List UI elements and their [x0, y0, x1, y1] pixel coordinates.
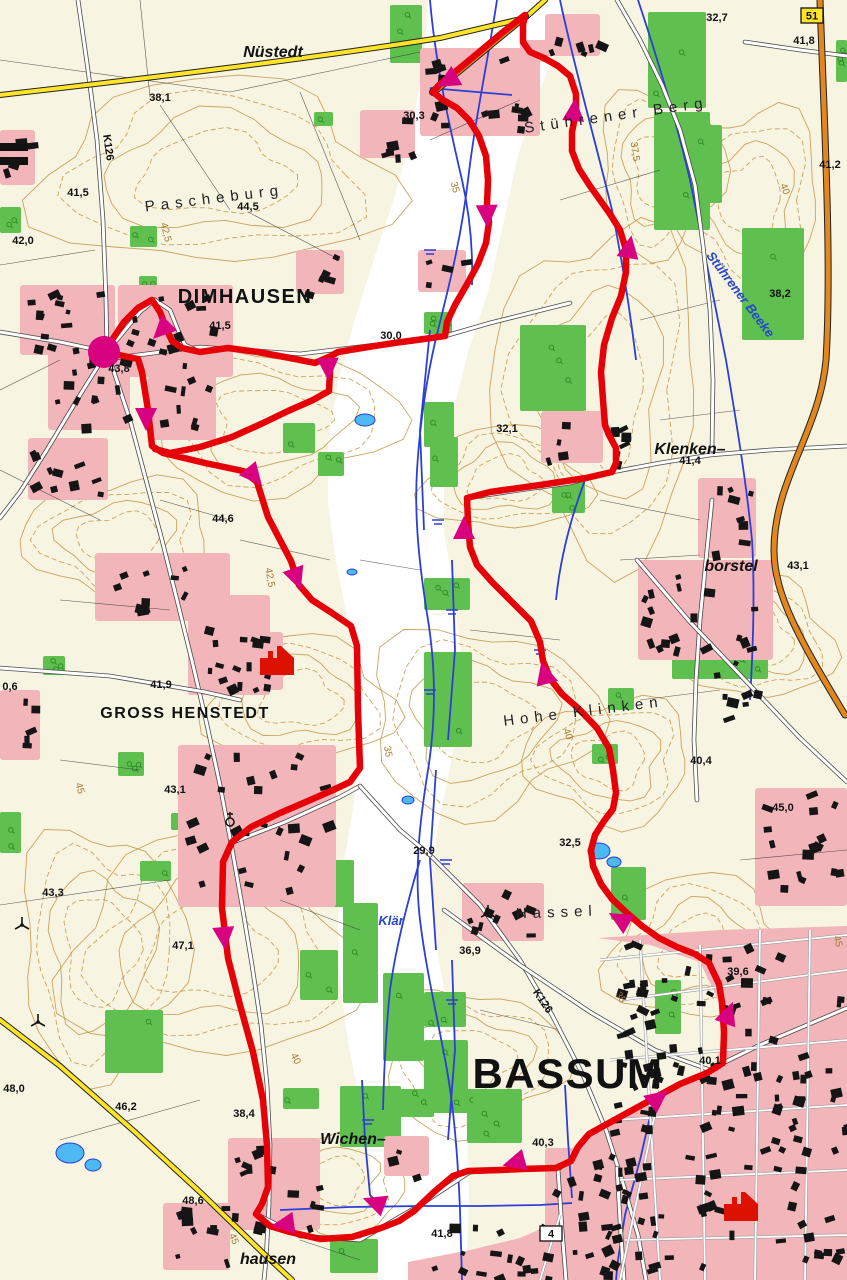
map-label: 32,1: [496, 423, 517, 435]
map-label: GROSS HENSTEDT: [100, 705, 269, 722]
forest-patch: [118, 752, 144, 776]
forest-patch: [330, 1239, 378, 1273]
map-label: DIMHAUSEN: [178, 286, 313, 308]
building: [677, 1065, 685, 1076]
building: [704, 588, 716, 598]
map-label: 39,6: [727, 966, 748, 978]
building: [176, 405, 181, 414]
map-label: 32,5: [559, 837, 580, 849]
map-label: K126: [100, 134, 116, 162]
building: [237, 682, 242, 691]
building: [665, 1255, 674, 1260]
map-label: 42,5: [158, 222, 173, 244]
building: [690, 613, 697, 622]
building: [23, 699, 28, 706]
forest-patch: [0, 207, 21, 233]
building: [751, 607, 758, 612]
map-label: K126: [530, 987, 555, 1016]
lake: [85, 1159, 101, 1171]
forest-patch: [314, 112, 333, 126]
building: [222, 1206, 231, 1211]
building: [578, 1221, 587, 1232]
building: [673, 1062, 680, 1069]
building: [496, 1228, 505, 1236]
field-boundary: [620, 555, 700, 560]
building: [72, 347, 79, 354]
building: [158, 296, 164, 302]
forest-patch: [343, 903, 378, 1003]
building: [837, 1002, 842, 1007]
map-label: 44,6: [212, 513, 233, 525]
building: [732, 1106, 745, 1117]
field-boundary: [0, 880, 170, 905]
building: [97, 491, 104, 497]
building: [741, 978, 753, 988]
field-boundary: [660, 410, 740, 420]
forest-patch: [520, 325, 586, 411]
wind-turbine-icon: [15, 925, 22, 929]
building: [97, 376, 104, 384]
building: [182, 1217, 194, 1226]
building: [213, 640, 219, 647]
building: [621, 432, 631, 442]
map-label: Klenken–: [654, 441, 725, 458]
building: [562, 422, 571, 430]
farm-building: [0, 143, 28, 151]
building: [614, 1102, 623, 1109]
wind-turbine-icon: [38, 1022, 45, 1026]
map-label: 41,9: [150, 679, 171, 691]
map-label: 40: [288, 1051, 303, 1066]
map-canvas: 38,141,542,044,530,330,041,543,844,632,7…: [0, 0, 847, 1280]
map-label: borstel: [704, 558, 758, 575]
building: [558, 451, 569, 460]
building: [24, 736, 29, 745]
building: [55, 399, 61, 404]
building: [41, 333, 50, 339]
map-label: 46,2: [115, 1101, 136, 1113]
topographic-map-viewport[interactable]: 38,141,542,044,530,330,041,543,844,632,7…: [0, 0, 847, 1280]
building: [181, 1207, 193, 1216]
map-label: 40,4: [690, 755, 712, 767]
map-label: 40: [777, 182, 791, 197]
building: [170, 348, 177, 352]
field-boundary: [600, 500, 700, 520]
building: [767, 869, 780, 880]
building: [61, 323, 73, 329]
building: [31, 706, 40, 714]
map-label: 38,4: [233, 1108, 255, 1120]
map-label: 41,8: [793, 35, 814, 47]
building: [247, 662, 252, 671]
building: [753, 690, 763, 700]
building: [254, 786, 263, 794]
map-label: Nüstedt: [243, 44, 303, 61]
building: [27, 299, 35, 305]
contour-line: [104, 106, 322, 228]
building: [252, 639, 264, 648]
road-minor-casing: [612, 446, 847, 472]
map-label: 32,7: [706, 12, 727, 24]
building: [182, 363, 187, 369]
building: [218, 787, 226, 793]
building: [643, 1163, 652, 1171]
wind-turbine-icon: [31, 1022, 38, 1026]
field-boundary: [248, 212, 340, 260]
settlement-patch: [384, 1136, 429, 1176]
building: [709, 1169, 721, 1180]
road-badge-label: 51: [806, 11, 818, 23]
building: [780, 885, 788, 893]
map-label: 45: [73, 782, 87, 796]
map-label: 41,5: [209, 320, 230, 332]
building: [526, 933, 535, 937]
building: [629, 980, 635, 989]
building: [729, 1231, 734, 1240]
building: [425, 68, 437, 75]
building: [69, 480, 80, 491]
building: [803, 1232, 815, 1242]
settlement-patch: [418, 250, 466, 292]
map-label: 45,0: [772, 802, 793, 814]
building: [684, 966, 691, 976]
building: [288, 823, 300, 833]
settlement-patch: [28, 438, 108, 500]
building: [814, 1252, 824, 1260]
map-label: 29,9: [413, 845, 434, 857]
map-label: Hohe Klinken: [502, 693, 664, 730]
map-label: 41,2: [819, 159, 840, 171]
building: [232, 1213, 239, 1222]
building: [573, 1250, 578, 1255]
building: [160, 419, 170, 428]
building: [624, 1167, 634, 1176]
building: [744, 1165, 753, 1170]
map-label: Wichen–: [320, 1131, 386, 1148]
lake: [607, 857, 621, 867]
map-label: 48,6: [182, 1195, 203, 1207]
contour-line: [144, 892, 279, 997]
map-label: 37,5: [628, 141, 642, 162]
building: [745, 1029, 751, 1037]
building: [712, 1110, 717, 1116]
map-label: 42,5: [262, 567, 276, 589]
building: [34, 344, 45, 354]
building: [618, 425, 629, 434]
building: [171, 575, 180, 580]
building: [723, 694, 728, 700]
forest-patch: [473, 1097, 508, 1140]
road-orange: [774, 0, 845, 715]
field-boundary: [560, 170, 660, 200]
forest-patch: [655, 980, 681, 1034]
building: [473, 1225, 478, 1232]
building: [802, 849, 814, 859]
building: [426, 282, 432, 288]
building: [635, 1251, 643, 1260]
building: [824, 1249, 833, 1256]
building: [287, 1190, 299, 1198]
building: [669, 1044, 677, 1053]
building: [640, 983, 647, 990]
lake: [56, 1143, 84, 1163]
building: [726, 697, 739, 709]
building: [517, 1271, 525, 1276]
map-label: 41,5: [67, 187, 88, 199]
building: [263, 684, 271, 692]
contour-line: [22, 75, 412, 261]
map-label: 40,3: [532, 1137, 553, 1149]
building: [15, 138, 27, 144]
map-label: Hassel: [516, 903, 598, 923]
forest-patch: [430, 437, 458, 487]
building: [742, 702, 749, 707]
building: [636, 990, 644, 997]
wind-turbine-icon: [22, 925, 29, 929]
building: [717, 486, 723, 495]
building: [697, 1001, 706, 1007]
road-badge-label: 4: [548, 1229, 555, 1241]
map-label: 43,1: [164, 784, 185, 796]
building: [736, 1094, 747, 1098]
map-label: 38,2: [769, 288, 790, 300]
building: [395, 154, 401, 163]
building: [775, 1094, 780, 1101]
map-label: 30,0: [380, 330, 401, 342]
settlement-patch: [0, 690, 40, 760]
map-label: 47,1: [172, 940, 193, 952]
lake: [347, 569, 357, 575]
building: [208, 668, 213, 674]
lake: [355, 414, 375, 426]
building: [738, 521, 748, 530]
building: [234, 753, 240, 762]
building: [658, 1214, 664, 1218]
building: [531, 1268, 539, 1274]
building: [695, 1175, 705, 1185]
building: [662, 978, 668, 983]
map-label: 48,0: [3, 1083, 24, 1095]
building: [826, 1068, 833, 1073]
map-label: 42,0: [12, 235, 33, 247]
settlement-patch: [541, 411, 603, 463]
building: [438, 64, 446, 70]
forest-patch: [283, 423, 315, 453]
map-label: BASSUM: [472, 1050, 663, 1097]
field-boundary: [0, 250, 95, 265]
building: [240, 637, 248, 643]
building: [809, 807, 818, 815]
map-label: hausen: [240, 1251, 296, 1268]
map-label: 40,1: [699, 1055, 720, 1067]
field-boundary: [0, 60, 230, 92]
building: [706, 990, 714, 997]
forest-patch: [318, 452, 344, 476]
building: [639, 1192, 649, 1200]
building: [488, 110, 500, 119]
building: [661, 639, 670, 648]
building: [714, 672, 721, 679]
map-label: 43,8: [108, 363, 129, 375]
forest-patch: [105, 1010, 163, 1073]
map-label: 41,8: [431, 1228, 452, 1240]
building: [91, 395, 98, 403]
building: [630, 1013, 638, 1020]
settlement-patch: [148, 372, 216, 440]
building: [72, 369, 77, 376]
contour-line: [64, 900, 143, 1008]
map-label: 38,1: [149, 92, 170, 104]
field-boundary: [140, 0, 150, 97]
building: [64, 381, 75, 390]
map-label: 36,9: [459, 945, 480, 957]
building: [723, 715, 736, 723]
building: [515, 103, 520, 109]
building: [792, 1071, 800, 1080]
field-boundary: [470, 630, 560, 640]
forest-patch: [383, 973, 424, 1061]
building: [751, 1062, 757, 1071]
route-direction-arrow: [212, 926, 236, 951]
building: [722, 956, 731, 962]
building: [441, 123, 449, 129]
map-label: 0,6: [2, 681, 17, 693]
building: [624, 942, 635, 951]
settlement-patch: [228, 1138, 320, 1230]
building: [763, 826, 772, 833]
building: [291, 764, 298, 770]
building: [619, 441, 631, 449]
map-label: 30,3: [403, 110, 424, 122]
map-label: Klär: [378, 913, 404, 928]
building: [81, 424, 92, 434]
contour-line: [48, 870, 160, 1034]
building: [837, 996, 845, 1003]
map-label: 43,3: [42, 887, 63, 899]
building: [795, 1166, 807, 1174]
map-label: 43,1: [787, 560, 808, 572]
lake: [402, 796, 414, 804]
building: [618, 1168, 622, 1177]
building: [800, 1075, 806, 1084]
